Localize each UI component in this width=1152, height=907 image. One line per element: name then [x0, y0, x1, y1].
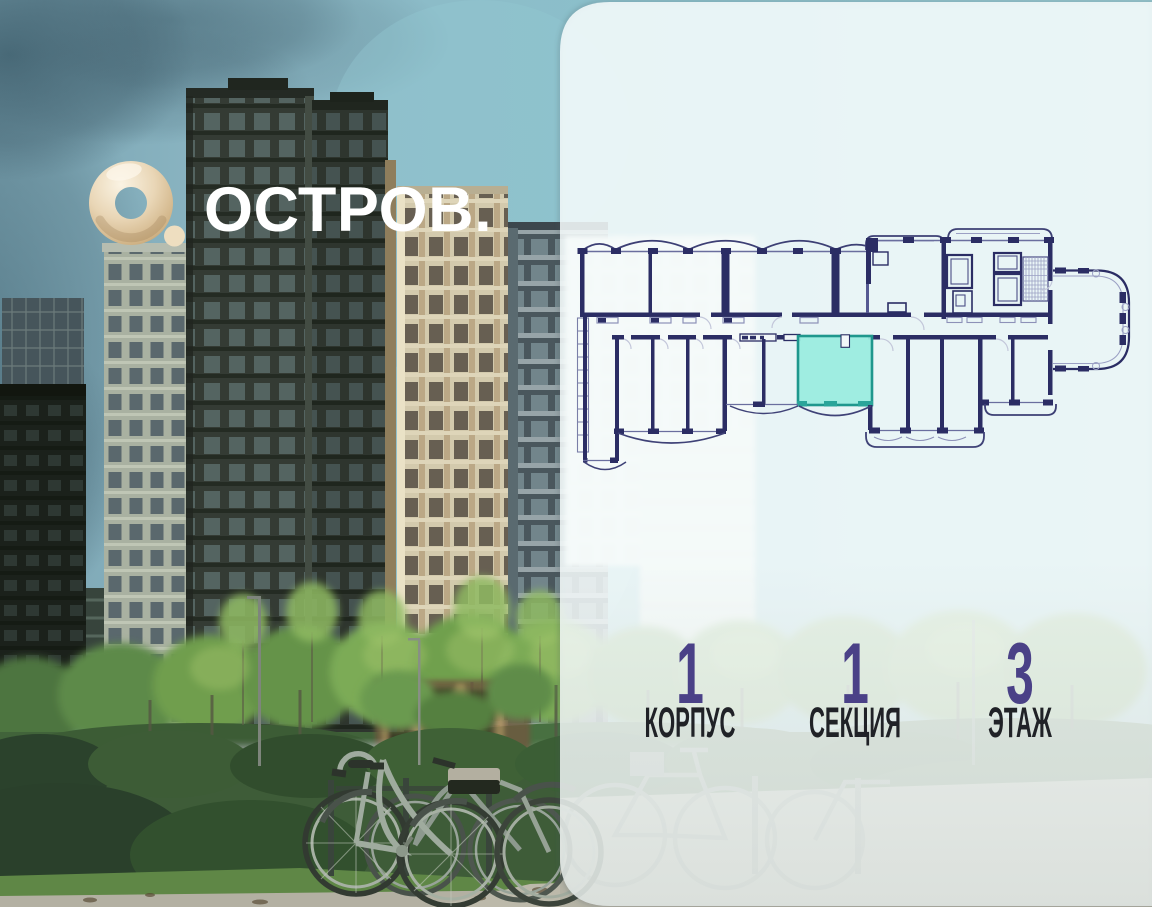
svg-text:ОСТРОВ.: ОСТРОВ. — [204, 175, 492, 245]
